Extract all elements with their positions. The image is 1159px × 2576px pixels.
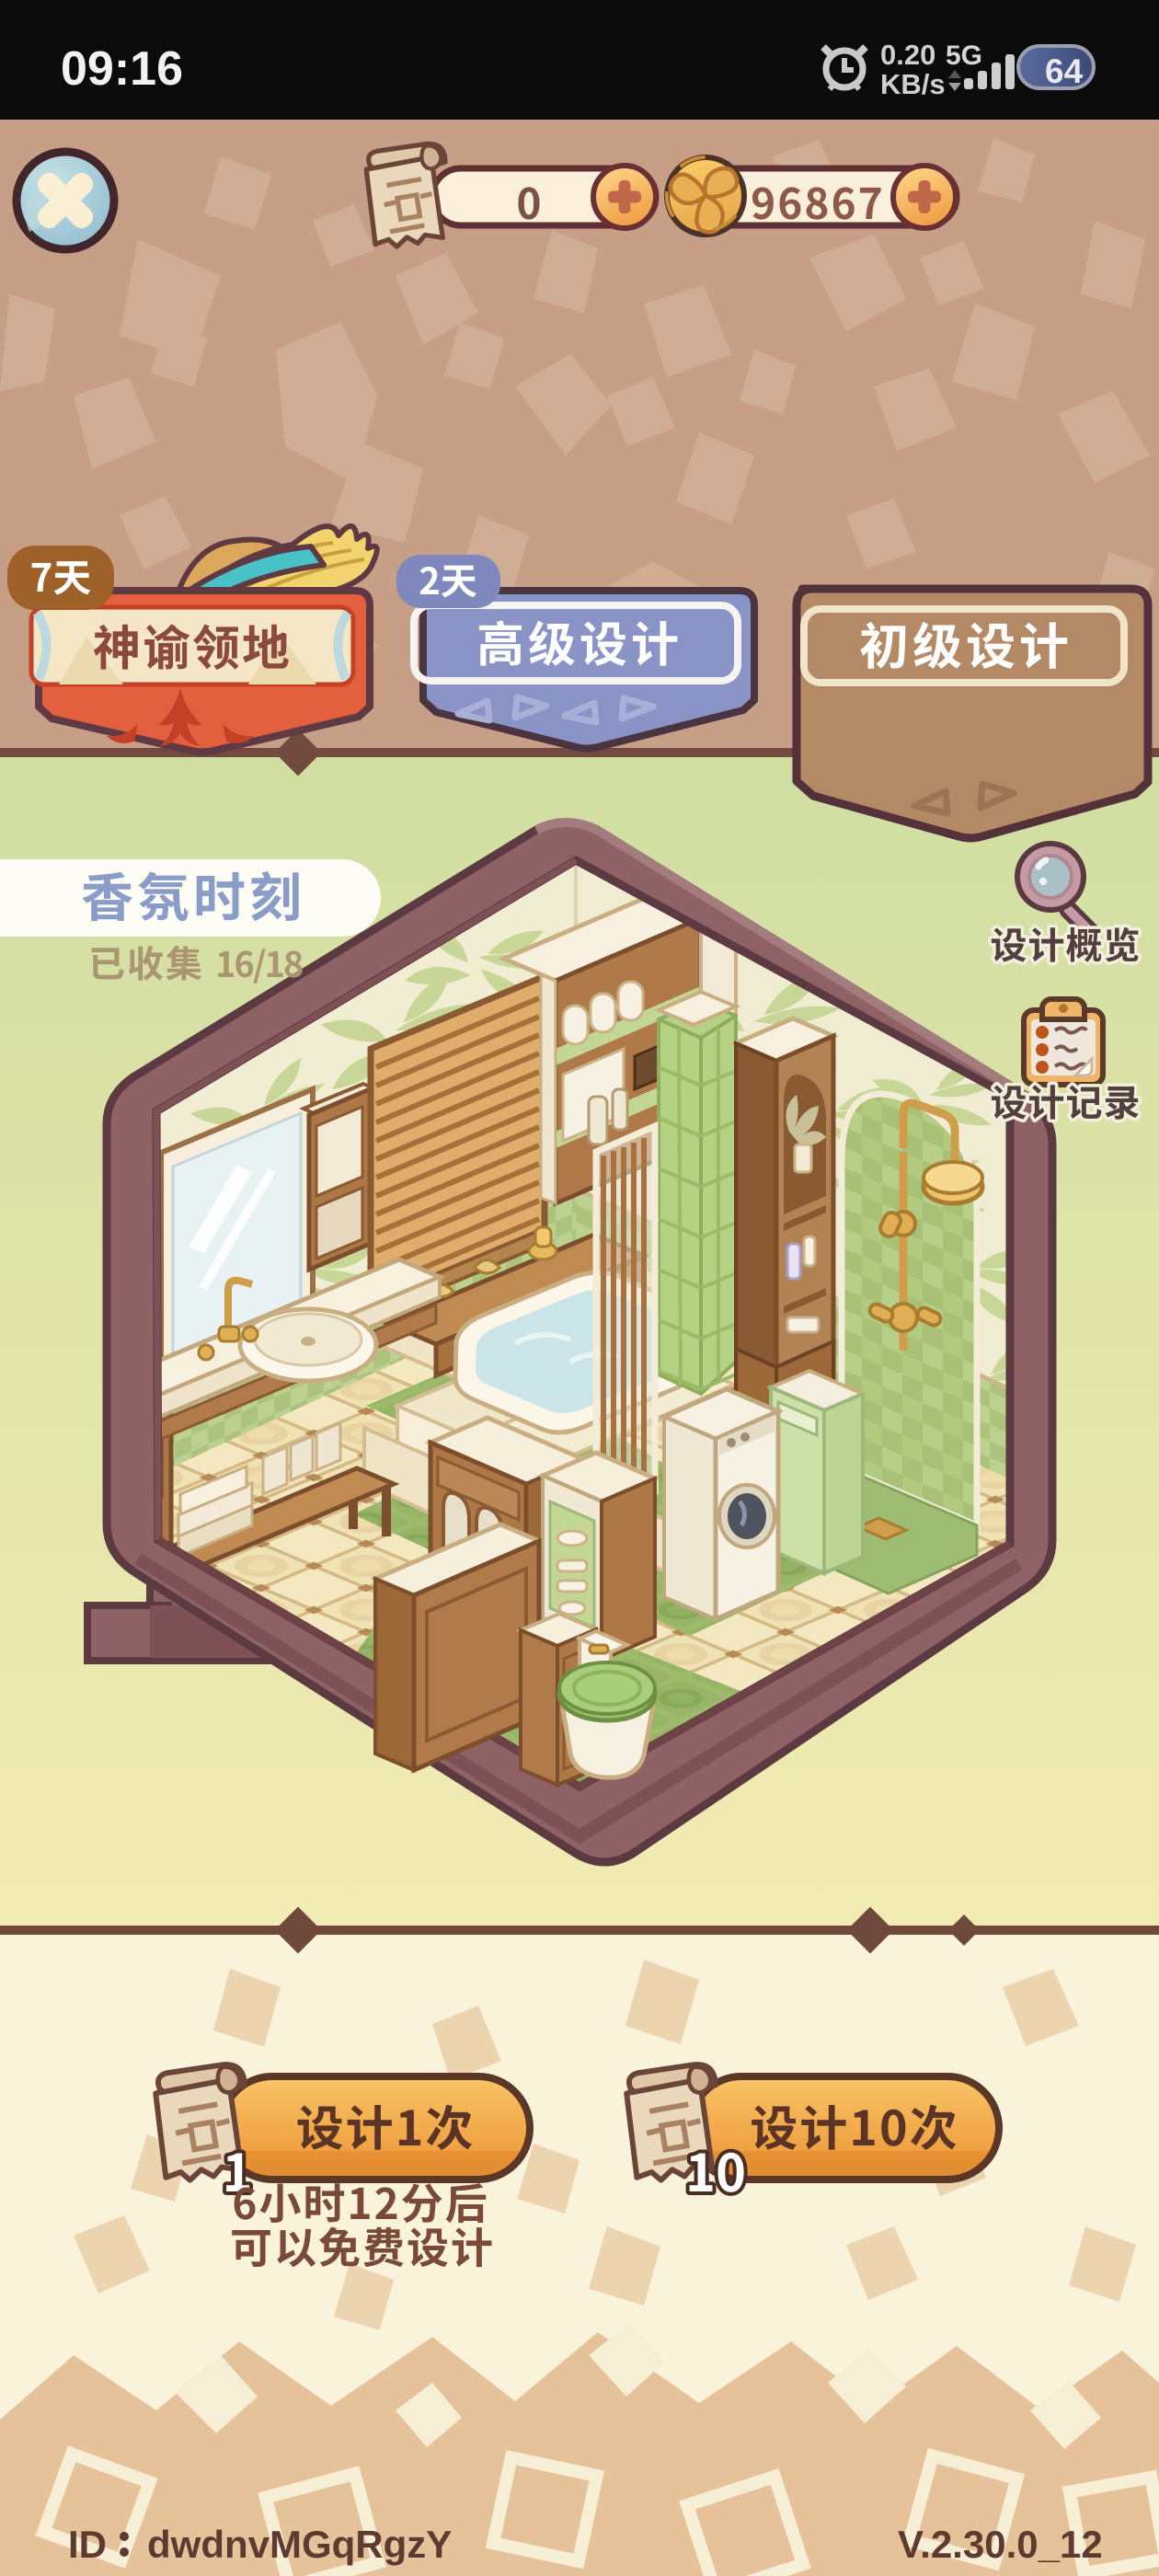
- svg-text:dwdnvMGqRgzY: dwdnvMGqRgzY: [147, 2523, 452, 2566]
- svg-text:5G: 5G: [946, 40, 982, 71]
- svg-text:64: 64: [1045, 52, 1084, 90]
- svg-text:KB/s: KB/s: [880, 68, 946, 100]
- svg-text:ID: ID: [68, 2523, 107, 2566]
- svg-text:0.20: 0.20: [880, 39, 935, 71]
- svg-text:V.2.30.0_12: V.2.30.0_12: [898, 2523, 1103, 2566]
- svg-text:09:16: 09:16: [61, 42, 183, 96]
